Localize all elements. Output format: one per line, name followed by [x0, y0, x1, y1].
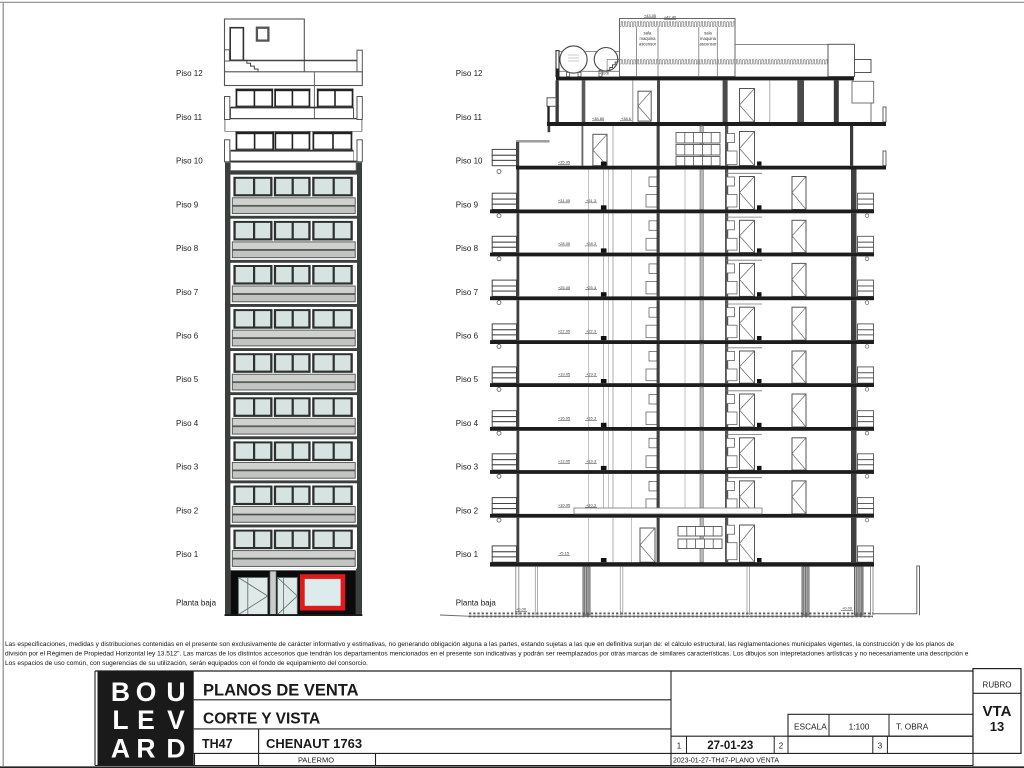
svg-text:TH47: TH47	[202, 737, 233, 751]
svg-text:RUBRO: RUBRO	[983, 681, 1012, 690]
svg-text:B: B	[111, 677, 130, 707]
svg-text:Piso 12: Piso 12	[456, 69, 483, 78]
svg-text:+0.00: +0.00	[842, 606, 853, 611]
svg-text:Los espacios de uso común, con: Los espacios de uso común, con sugerenci…	[5, 660, 368, 667]
svg-text:Piso 9: Piso 9	[176, 200, 199, 209]
svg-text:Piso 8: Piso 8	[176, 244, 199, 253]
svg-text:Planta baja: Planta baja	[456, 599, 497, 608]
svg-text:Piso 9: Piso 9	[456, 200, 479, 209]
svg-text:A: A	[111, 733, 130, 763]
svg-text:PALERMO: PALERMO	[298, 756, 334, 765]
svg-text:+16.05: +16.05	[558, 416, 571, 421]
svg-text:maquina: maquina	[700, 36, 717, 41]
svg-text:Piso 3: Piso 3	[456, 463, 479, 472]
svg-text:D: D	[166, 733, 185, 763]
svg-text:Piso 6: Piso 6	[176, 332, 199, 341]
svg-text:Piso 11: Piso 11	[176, 113, 203, 122]
svg-text:13: 13	[990, 719, 1004, 734]
svg-text:+5.15: +5.15	[559, 551, 570, 556]
svg-text:+25.05: +25.05	[558, 285, 571, 290]
svg-text:Piso 3: Piso 3	[176, 463, 199, 472]
svg-text:Piso 7: Piso 7	[456, 288, 479, 297]
svg-text:2023-01-27-TH47-PLANO VENTA: 2023-01-27-TH47-PLANO VENTA	[673, 757, 779, 764]
svg-text:+28.05: +28.05	[558, 241, 571, 246]
svg-text:Planta baja: Planta baja	[176, 599, 217, 608]
svg-text:R: R	[136, 733, 155, 763]
svg-text:3: 3	[878, 741, 883, 750]
svg-text:ascensor: ascensor	[700, 42, 718, 47]
svg-text:L: L	[112, 705, 128, 735]
svg-text:+31.3: +31.3	[586, 198, 597, 203]
svg-text:1: 1	[677, 741, 682, 750]
svg-text:Piso 5: Piso 5	[176, 375, 199, 384]
svg-text:Piso 11: Piso 11	[456, 113, 483, 122]
svg-text:+16.3: +16.3	[586, 416, 597, 421]
svg-text:Las especificaciones, medidas: Las especificaciones, medidas y distribu…	[5, 641, 954, 648]
svg-text:Piso 4: Piso 4	[456, 419, 479, 428]
svg-text:+42.40: +42.40	[664, 15, 677, 20]
svg-text:U: U	[166, 677, 185, 707]
svg-text:Piso 1: Piso 1	[456, 550, 479, 559]
svg-text:+25.3: +25.3	[586, 285, 597, 290]
svg-text:+22.05: +22.05	[558, 329, 571, 334]
svg-text:+19.3: +19.3	[586, 372, 597, 377]
svg-text:Piso 8: Piso 8	[456, 244, 479, 253]
svg-text:1:100: 1:100	[849, 722, 870, 732]
svg-text:2: 2	[779, 741, 784, 750]
svg-text:E: E	[137, 705, 155, 735]
svg-text:división por el Régimen de Pro: división por el Régimen de Propiedad Hor…	[5, 651, 969, 658]
svg-text:+35.95: +35.95	[558, 160, 571, 165]
svg-text:ascensor: ascensor	[639, 42, 657, 47]
svg-text:sala: sala	[704, 31, 712, 36]
svg-text:ESCALA: ESCALA	[794, 722, 827, 732]
svg-text:maquina: maquina	[639, 36, 656, 41]
svg-text:+38.85: +38.85	[592, 116, 605, 121]
svg-text:O: O	[136, 677, 157, 707]
svg-text:Piso 10: Piso 10	[176, 157, 203, 166]
svg-text:CORTE Y VISTA: CORTE Y VISTA	[203, 711, 320, 728]
svg-text:CHENAUT 1763: CHENAUT 1763	[266, 736, 362, 751]
svg-text:Piso 2: Piso 2	[176, 506, 199, 515]
svg-text:+13.05: +13.05	[558, 459, 571, 464]
svg-text:+22.3: +22.3	[586, 329, 597, 334]
svg-text:27-01-23: 27-01-23	[707, 740, 753, 752]
svg-text:T. OBRA: T. OBRA	[896, 722, 929, 732]
svg-text:+28.3: +28.3	[586, 241, 597, 246]
svg-text:Piso 10: Piso 10	[456, 157, 483, 166]
svg-text:+19.05: +19.05	[558, 372, 571, 377]
svg-text:V: V	[167, 705, 185, 735]
svg-text:Piso 7: Piso 7	[176, 288, 199, 297]
svg-text:Piso 6: Piso 6	[456, 332, 479, 341]
svg-text:+31.05: +31.05	[558, 198, 571, 203]
svg-text:Piso 12: Piso 12	[176, 69, 203, 78]
svg-text:+0.00: +0.00	[516, 607, 527, 612]
svg-text:VTA: VTA	[983, 703, 1012, 720]
svg-text:Piso 1: Piso 1	[176, 550, 199, 559]
svg-text:+10.3: +10.3	[586, 502, 597, 507]
svg-text:+10.05: +10.05	[558, 502, 571, 507]
svg-text:+13.3: +13.3	[586, 459, 597, 464]
svg-text:+43.05: +43.05	[644, 13, 657, 18]
svg-text:PLANOS DE VENTA: PLANOS DE VENTA	[203, 682, 359, 700]
svg-text:Piso 5: Piso 5	[456, 375, 479, 384]
svg-text:Piso 2: Piso 2	[456, 506, 479, 515]
svg-text:sala: sala	[644, 31, 652, 36]
svg-text:Piso 4: Piso 4	[176, 419, 199, 428]
svg-text:+38.6: +38.6	[621, 116, 632, 121]
